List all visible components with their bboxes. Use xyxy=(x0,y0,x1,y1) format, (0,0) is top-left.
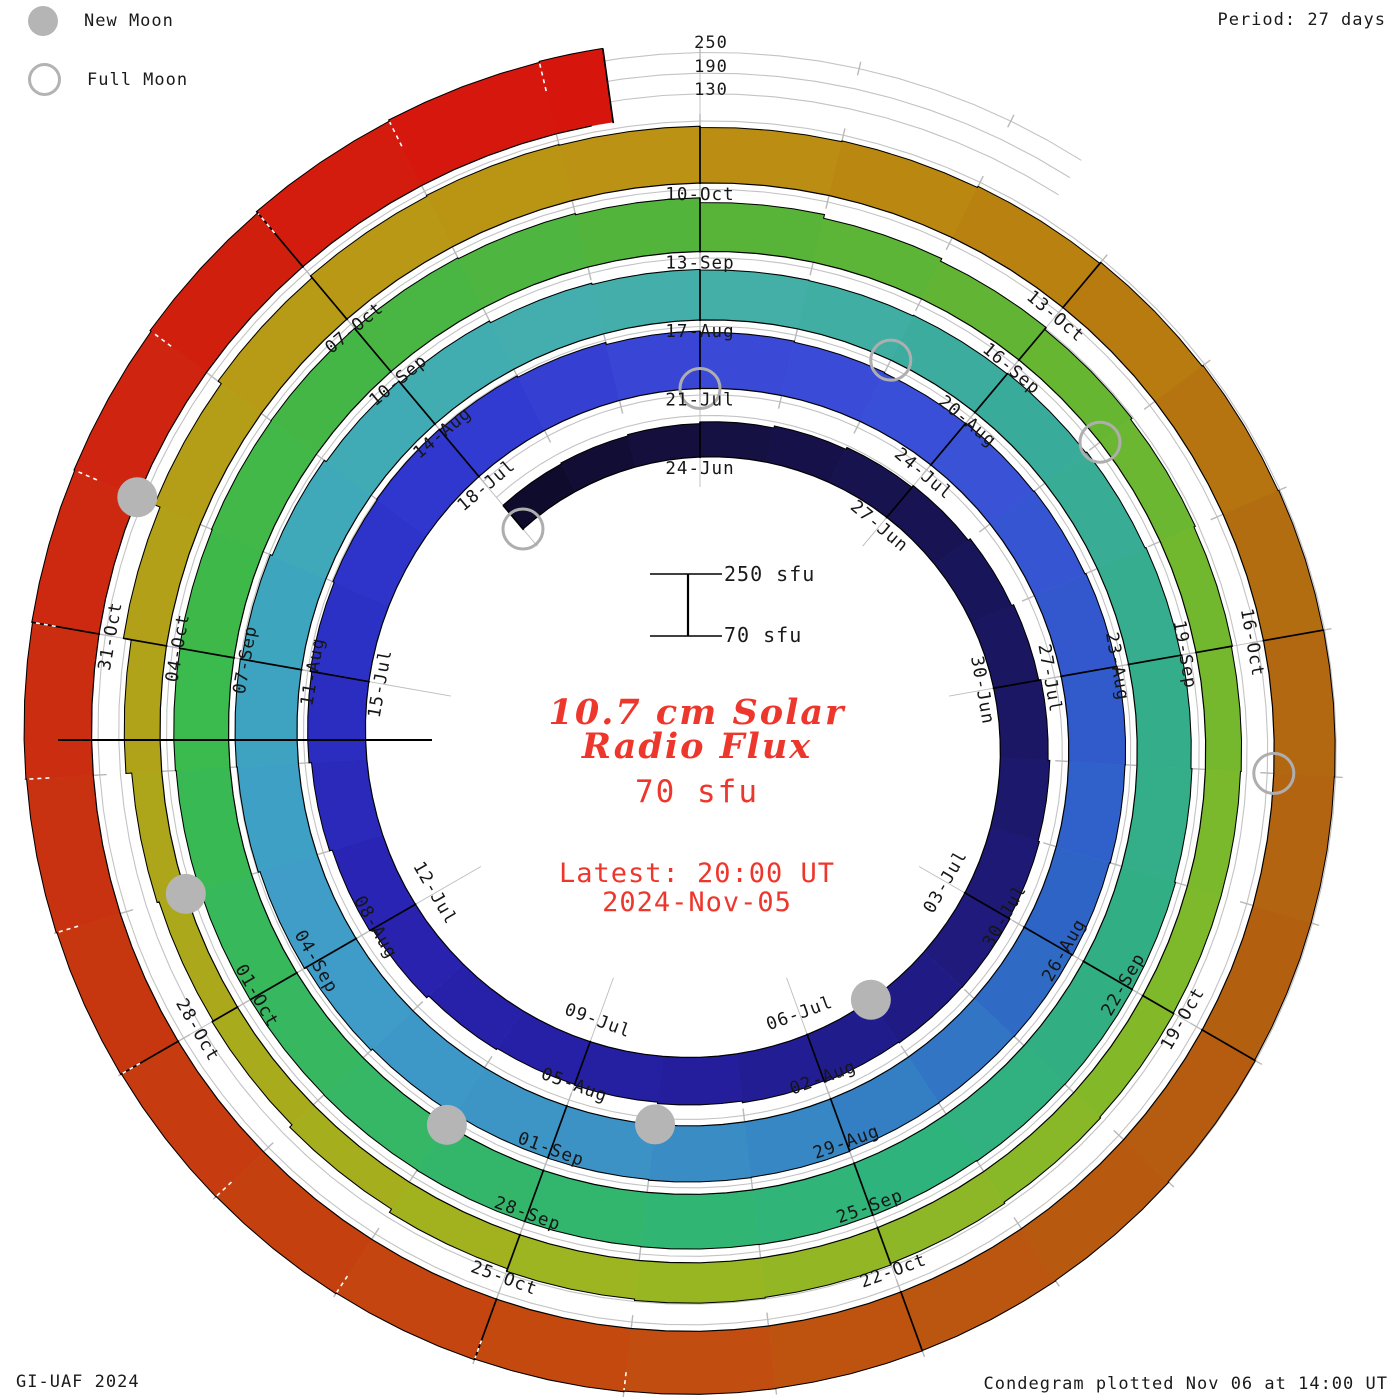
condegram-page: 24-Jun27-Jun30-Jun03-Jul06-Jul09-Jul12-J… xyxy=(0,0,1400,1400)
legend-new-moon: New Moon xyxy=(28,6,174,36)
date-tick-label: 13-Sep xyxy=(665,253,734,273)
latest-time-label: Latest: 20:00 UT xyxy=(559,858,835,889)
legend-full-moon: Full Moon xyxy=(28,63,188,96)
scalebar-min-label: 70 sfu xyxy=(724,623,802,647)
scale-label-130: 130 xyxy=(694,80,728,100)
full-moon-icon xyxy=(28,63,61,96)
plotted-label: Condegram plotted Nov 06 at 14:00 UT xyxy=(984,1374,1388,1394)
baseline-value-label: 70 sfu xyxy=(635,774,759,810)
date-tick-label: 17-Aug xyxy=(665,322,734,342)
scale-label-190: 190 xyxy=(694,57,728,77)
new-moon-marker xyxy=(166,874,206,914)
new-moon-marker xyxy=(851,980,891,1020)
scalebar-max-label: 250 sfu xyxy=(724,562,815,586)
legend-full-moon-label: Full Moon xyxy=(87,70,188,90)
latest-date-label: 2024-Nov-05 xyxy=(602,887,792,918)
new-moon-icon xyxy=(28,6,58,36)
period-label: Period: 27 days xyxy=(1217,10,1386,30)
legend-new-moon-label: New Moon xyxy=(84,11,174,31)
new-moon-marker xyxy=(117,477,157,517)
date-tick-label: 10-Oct xyxy=(665,185,734,205)
date-tick-label: 24-Jun xyxy=(665,459,734,479)
new-moon-marker xyxy=(427,1105,467,1145)
credit-label: GI-UAF 2024 xyxy=(16,1372,140,1392)
scale-label-250: 250 xyxy=(694,33,728,53)
scalebar xyxy=(650,574,722,636)
date-tick-label: 21-Jul xyxy=(665,390,734,410)
chart-title-line2: Radio Flux xyxy=(582,726,812,767)
new-moon-marker xyxy=(635,1104,675,1144)
